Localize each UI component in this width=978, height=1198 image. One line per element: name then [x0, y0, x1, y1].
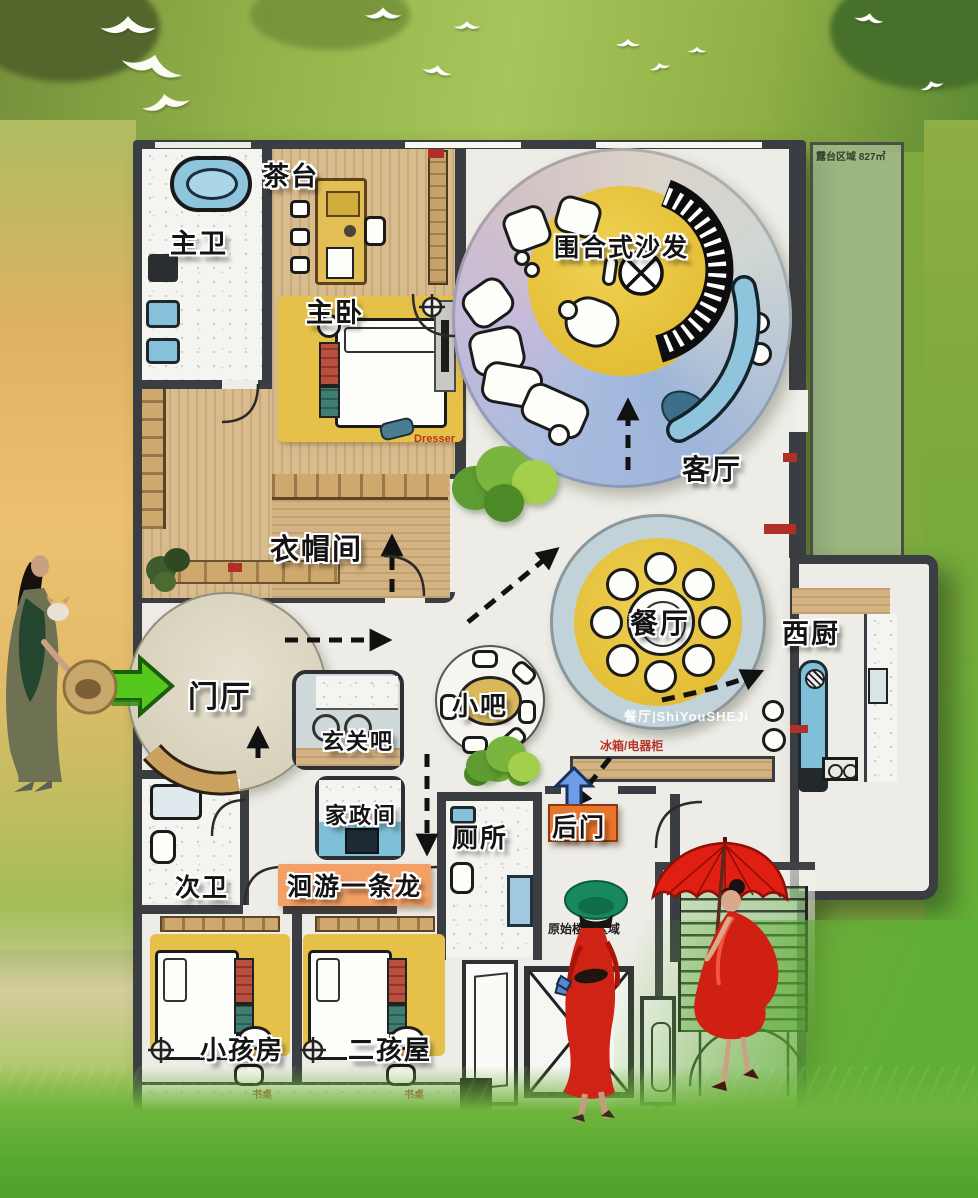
bar-chair [472, 650, 498, 668]
room-label-master-bath: 主卫 [170, 222, 228, 261]
bathtub-basin [186, 168, 238, 200]
room-label-cloakroom: 衣帽间 [270, 526, 363, 568]
bird-icon [452, 20, 482, 33]
kid2-blanket-red [387, 958, 407, 1004]
stove [822, 757, 858, 781]
stool [290, 200, 310, 218]
red-tag [228, 563, 242, 572]
island-chair [762, 728, 786, 752]
tree-canopy-icon [508, 752, 540, 782]
burner [828, 764, 843, 779]
room-label-sofa-circle: 围合式沙发 [554, 228, 689, 264]
stool [548, 424, 570, 446]
room-label-small-bar: 小吧 [452, 686, 508, 723]
room-label-loop-path: 洄游一条龙 [278, 864, 431, 906]
side-table [748, 312, 770, 334]
room-label-living-room: 客厅 [682, 448, 742, 488]
terrace-annotation: 露台区域 827㎡ [816, 148, 885, 163]
toilet [450, 862, 474, 894]
ottoman [558, 300, 578, 320]
stool [290, 228, 310, 246]
red-tag [790, 725, 808, 733]
plant-icon [154, 572, 176, 592]
woman-with-straw-hat-and-cat [0, 550, 125, 795]
shower [150, 784, 202, 820]
ottoman [524, 262, 540, 278]
window [155, 142, 251, 148]
wall [618, 786, 656, 794]
dining-chair [682, 568, 715, 601]
room-label-second-bath: 次卫 [175, 868, 229, 904]
washing-machine [345, 828, 379, 854]
bird-icon [686, 46, 708, 56]
tea-tray [326, 247, 354, 279]
kid1-wardrobe [160, 916, 280, 932]
grass-overlay-bottom [0, 1066, 978, 1198]
room-label-west-kitchen: 西厨 [782, 612, 840, 651]
bath-sink [146, 338, 180, 364]
fridge-annotation: 冰箱/电器柜 [600, 737, 663, 754]
wall [533, 792, 542, 960]
room-label-master-bedroom: 主卧 [306, 291, 364, 330]
stool [290, 256, 310, 274]
crane-bird-icon [96, 14, 160, 42]
terrace-area [810, 142, 904, 562]
red-tag [428, 149, 444, 158]
dining-chair [590, 606, 623, 639]
tv [441, 320, 449, 372]
wardrobe-column [142, 389, 166, 529]
island-chair [762, 700, 784, 722]
kitchen-island [798, 660, 828, 772]
wall [292, 905, 302, 1083]
room-label-toilet: 厕所 [452, 818, 508, 855]
room-label-back-door: 后门 [552, 808, 606, 844]
kid2-wardrobe [315, 916, 435, 932]
dining-chair [682, 644, 715, 677]
terrace-door-gap [796, 390, 808, 432]
woman-with-red-umbrella [645, 835, 805, 1120]
tree-canopy-icon [484, 484, 524, 522]
window [405, 142, 521, 148]
wall [789, 432, 798, 558]
blanket-teal [319, 386, 340, 418]
toilet-door-panel [507, 875, 533, 927]
tea-set [344, 225, 356, 237]
room-label-housekeeping: 家政间 [325, 798, 397, 830]
entry-bar-counter [316, 676, 398, 710]
pillow [316, 958, 340, 1002]
pillow [163, 958, 187, 1002]
room-label-tea-table: 茶台 [263, 156, 319, 193]
watermark: 餐厅|ShiYouSHEJi [624, 706, 749, 725]
kid1-blanket-red [234, 958, 254, 1004]
woman-in-green-hat-red-dress [545, 872, 645, 1122]
island-hob [805, 669, 825, 689]
floor-plan-illustration: 茶台 主卫 主卧 围合式沙发 客厅 衣帽间 门厅 玄关吧 小吧 餐厅 西厨 家政… [0, 0, 978, 1198]
bird-icon [614, 38, 642, 50]
wall [437, 792, 537, 801]
wall [133, 380, 222, 389]
room-label-foyer: 门厅 [188, 672, 252, 716]
wall [133, 905, 243, 914]
dining-chair [606, 644, 639, 677]
dining-chair [606, 568, 639, 601]
toilet [150, 830, 176, 864]
wall [240, 775, 249, 905]
room-label-kid-room-1: 小孩房 [200, 1030, 284, 1067]
kitchen-counter-top [792, 588, 890, 614]
watercolor-sand-left [0, 120, 136, 950]
red-tag [764, 524, 796, 534]
kitchen-sink [868, 668, 888, 704]
dining-chair [698, 606, 731, 639]
blanket-red [319, 342, 340, 386]
master-bed [335, 318, 447, 428]
wall [789, 142, 798, 390]
side-table [748, 342, 772, 366]
burner [843, 764, 858, 779]
bathtub [170, 156, 252, 212]
tea-table [315, 178, 367, 285]
pillows [344, 327, 442, 353]
room-label-kid-room-2: 二孩屋 [348, 1030, 432, 1067]
room-label-entry-bar: 玄关吧 [322, 724, 394, 756]
go-board [326, 191, 360, 217]
dresser-annotation: Dresser [414, 433, 455, 445]
closet-strip [428, 150, 448, 285]
dining-chair [644, 552, 677, 585]
bath-sink [146, 300, 180, 328]
room-label-dining: 餐厅 [630, 602, 690, 642]
dining-chair [644, 660, 677, 693]
wardrobe-row [272, 474, 448, 500]
red-tag [783, 453, 797, 462]
bird-icon [362, 6, 404, 24]
plant-icon [164, 548, 190, 572]
fridge-cabinet-row [570, 756, 775, 782]
bench [364, 216, 386, 246]
